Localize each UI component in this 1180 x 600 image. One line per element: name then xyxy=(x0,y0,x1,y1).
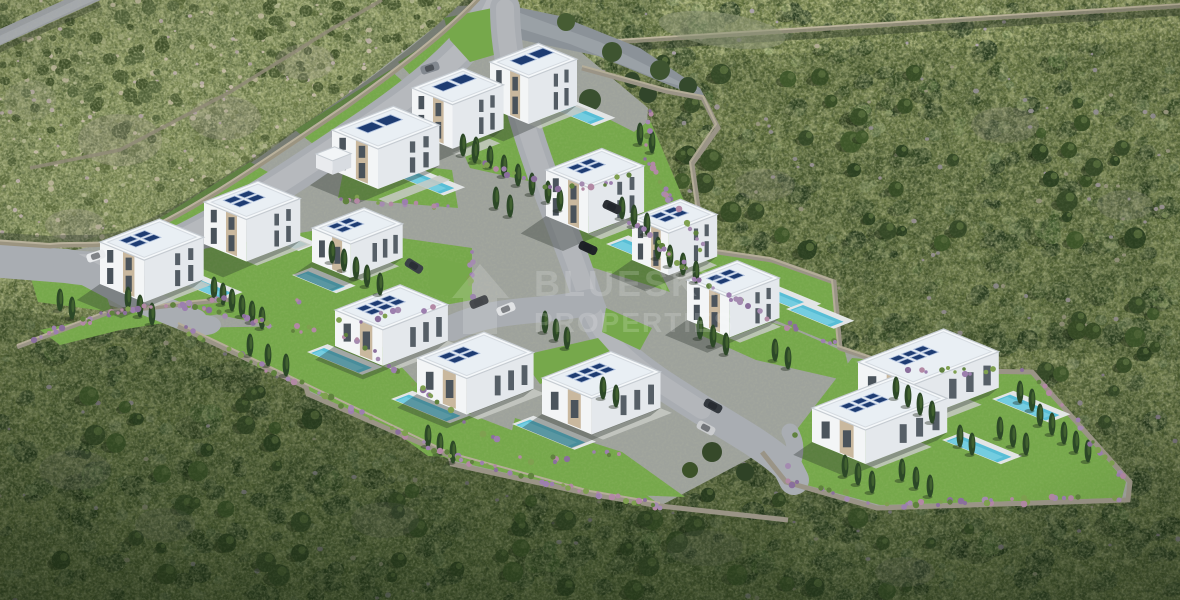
svg-text:BLUESKY: BLUESKY xyxy=(534,263,727,304)
svg-text:PROPERTIES: PROPERTIES xyxy=(534,307,734,338)
